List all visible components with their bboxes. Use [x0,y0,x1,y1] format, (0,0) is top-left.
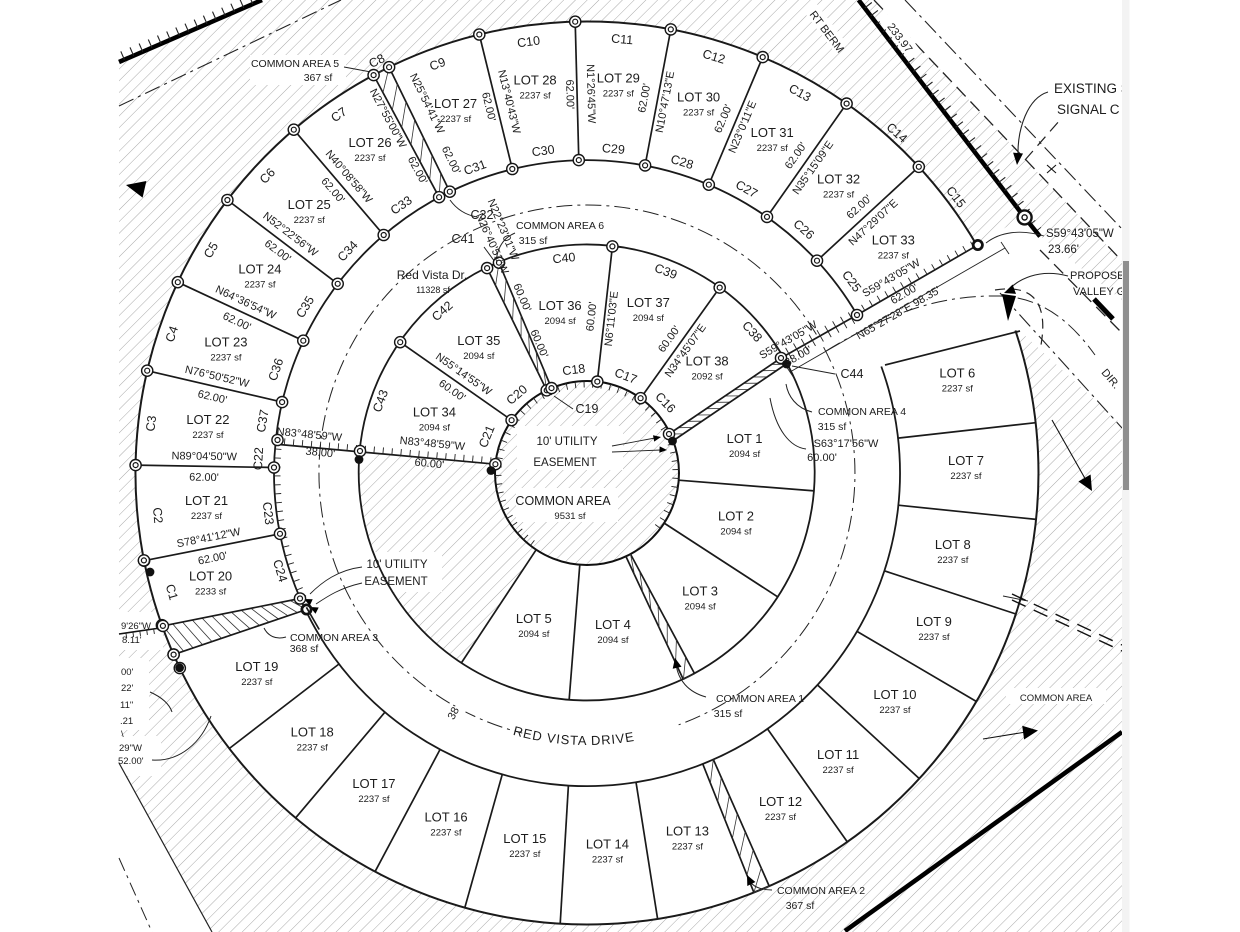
svg-text:LOT 27: LOT 27 [434,96,477,111]
svg-text:LOT 30: LOT 30 [677,90,720,105]
svg-text:LOT 19: LOT 19 [235,659,278,674]
svg-text:LOT 17: LOT 17 [352,776,395,791]
svg-text:LOT 4: LOT 4 [595,617,631,632]
svg-text:367 sf: 367 sf [786,900,815,912]
svg-text:LOT 31: LOT 31 [751,125,794,140]
svg-text:C18: C18 [562,361,587,378]
svg-text:LOT 3: LOT 3 [682,583,718,598]
svg-text:2094 sf: 2094 sf [518,629,550,640]
svg-text:LOT 20: LOT 20 [189,568,232,583]
svg-text:2237 sf: 2237 sf [937,555,969,566]
svg-text:COMMON AREA 4: COMMON AREA 4 [818,406,906,418]
svg-text:2094 sf: 2094 sf [419,423,451,434]
svg-text:2237 sf: 2237 sf [918,632,950,643]
svg-text:LOT 14: LOT 14 [586,836,629,851]
svg-text:10' UTILITY: 10' UTILITY [367,559,428,571]
svg-text:COMMON AREA 5: COMMON AREA 5 [251,58,339,70]
svg-text:9531 sf: 9531 sf [554,511,586,522]
svg-text:LOT 8: LOT 8 [935,537,971,552]
svg-text:EASEMENT: EASEMENT [364,576,427,588]
svg-text:LOT 5: LOT 5 [516,611,552,626]
svg-text:S63°17'56"W: S63°17'56"W [814,438,879,450]
svg-text:LOT 10: LOT 10 [873,687,916,702]
svg-text:2237 sf: 2237 sf [823,190,855,201]
svg-text:Red Vista Dr.: Red Vista Dr. [397,268,467,282]
svg-text:11": 11" [120,700,133,711]
svg-text:2237 sf: 2237 sf [950,471,982,482]
svg-text:C23: C23 [260,501,277,525]
svg-text:2237 sf: 2237 sf [297,742,329,753]
svg-text:2237 sf: 2237 sf [672,841,704,852]
svg-text:C41: C41 [452,232,475,246]
svg-text:2237 sf: 2237 sf [878,250,910,261]
svg-text:LOT 33: LOT 33 [872,232,915,247]
svg-text:LOT 1: LOT 1 [727,431,763,446]
svg-text:29"W: 29"W [119,743,142,754]
svg-text:315 sf: 315 sf [714,708,743,720]
svg-text:2237 sf: 2237 sf [509,849,541,860]
svg-text:LOT 28: LOT 28 [514,73,557,88]
svg-text:LOT 6: LOT 6 [939,365,975,380]
svg-text:2094 sf: 2094 sf [463,351,495,362]
svg-text:2237 sf: 2237 sf [683,108,715,119]
svg-text:LOT 9: LOT 9 [916,614,952,629]
svg-text:10' UTILITY: 10' UTILITY [537,436,598,448]
svg-text:367 sf: 367 sf [304,72,333,84]
svg-text:2237 sf: 2237 sf [210,352,242,363]
svg-text:C11: C11 [611,32,634,48]
svg-text:2237 sf: 2237 sf [879,705,911,716]
svg-text:2094 sf: 2094 sf [597,635,629,646]
svg-text:C44: C44 [841,367,864,381]
svg-text:C19: C19 [576,402,599,416]
svg-text:N1°26'45"W: N1°26'45"W [584,64,598,124]
svg-text:2237 sf: 2237 sf [765,812,797,823]
svg-text:52.00': 52.00' [118,756,144,767]
svg-text:\: \ [121,729,124,740]
svg-text:LOT 24: LOT 24 [238,262,281,277]
svg-text:.21: .21 [120,716,133,727]
svg-text:S59°43'05"W: S59°43'05"W [1046,228,1114,240]
svg-text:315 sf: 315 sf [519,235,548,247]
svg-text:C29: C29 [601,141,625,157]
svg-text:LOT 12: LOT 12 [759,794,802,809]
svg-text:COMMON AREA: COMMON AREA [1020,693,1093,704]
svg-text:8.11': 8.11' [122,635,142,646]
svg-text:2094 sf: 2094 sf [729,449,761,460]
svg-text:315 sf: 315 sf [818,421,847,433]
svg-text:EASEMENT: EASEMENT [533,457,596,469]
svg-text:C2: C2 [150,507,165,524]
svg-text:62.00': 62.00' [189,472,219,485]
svg-text:LOT 36: LOT 36 [539,298,582,313]
svg-text:C40: C40 [552,250,576,266]
svg-text:LOT 7: LOT 7 [948,453,984,468]
svg-text:EXISTING S: EXISTING S [1054,81,1130,96]
svg-text:LOT 11: LOT 11 [817,747,859,762]
svg-text:C32: C32 [471,208,494,222]
svg-text:LOT 2: LOT 2 [718,509,754,524]
svg-text:LOT 34: LOT 34 [413,405,456,420]
svg-text:2094 sf: 2094 sf [545,316,577,327]
svg-text:2094 sf: 2094 sf [720,527,752,538]
svg-text:2092 sf: 2092 sf [692,371,724,382]
svg-text:COMMON AREA 2: COMMON AREA 2 [777,885,865,897]
svg-text:60.00': 60.00' [807,452,837,464]
svg-text:2094 sf: 2094 sf [685,601,717,612]
svg-text:2237 sf: 2237 sf [757,143,789,154]
svg-text:2237 sf: 2237 sf [192,430,224,441]
svg-text:LOT 15: LOT 15 [503,831,546,846]
svg-text:368 sf: 368 sf [290,643,319,655]
svg-text:2233 sf: 2233 sf [195,586,227,597]
svg-text:COMMON AREA 1: COMMON AREA 1 [716,693,804,705]
svg-text:2237 sf: 2237 sf [942,383,974,394]
svg-text:2237 sf: 2237 sf [358,794,390,805]
svg-text:LOT 13: LOT 13 [666,823,709,838]
svg-text:LOT 25: LOT 25 [288,197,331,212]
svg-text:22': 22' [121,683,134,694]
svg-text:COMMON AREA: COMMON AREA [515,494,611,508]
svg-text:00': 00' [121,667,134,678]
svg-text:COMMON AREA 6: COMMON AREA 6 [516,220,604,232]
svg-text:2237 sf: 2237 sf [823,765,855,776]
svg-text:LOT 22: LOT 22 [186,412,229,427]
svg-text:23.66': 23.66' [1048,244,1079,256]
svg-text:2094 sf: 2094 sf [633,313,665,324]
svg-text:2237 sf: 2237 sf [430,828,462,839]
svg-text:LOT 16: LOT 16 [424,810,467,825]
svg-text:2237 sf: 2237 sf [294,215,326,226]
svg-text:2237 sf: 2237 sf [244,280,276,291]
svg-text:LOT 29: LOT 29 [597,70,640,85]
svg-text:2237 sf: 2237 sf [603,88,635,99]
svg-text:LOT 18: LOT 18 [291,724,334,739]
svg-text:LOT 37: LOT 37 [627,295,670,310]
svg-text:SIGNAL C: SIGNAL C [1057,102,1120,117]
svg-text:11328 sf: 11328 sf [416,285,450,295]
svg-text:LOT 26: LOT 26 [348,135,391,150]
svg-text:2237 sf: 2237 sf [440,114,472,125]
svg-text:2237 sf: 2237 sf [354,153,386,164]
svg-text:LOT 32: LOT 32 [817,172,860,187]
svg-text:VALLEY G: VALLEY G [1073,286,1125,298]
svg-text:2237 sf: 2237 sf [241,677,273,688]
svg-text:2237 sf: 2237 sf [592,854,624,865]
svg-text:2237 sf: 2237 sf [191,511,223,522]
svg-text:LOT 38: LOT 38 [686,353,729,368]
svg-text:62.00': 62.00' [563,79,576,109]
svg-text:LOT 21: LOT 21 [185,493,228,508]
svg-text:9'26"W: 9'26"W [121,621,151,632]
svg-text:LOT 23: LOT 23 [204,334,247,349]
svg-text:2237 sf: 2237 sf [520,91,552,102]
svg-text:C3: C3 [143,415,159,433]
svg-text:C22: C22 [251,447,266,471]
svg-text:LOT 35: LOT 35 [457,333,500,348]
svg-text:N89°04'50"W: N89°04'50"W [171,450,237,463]
